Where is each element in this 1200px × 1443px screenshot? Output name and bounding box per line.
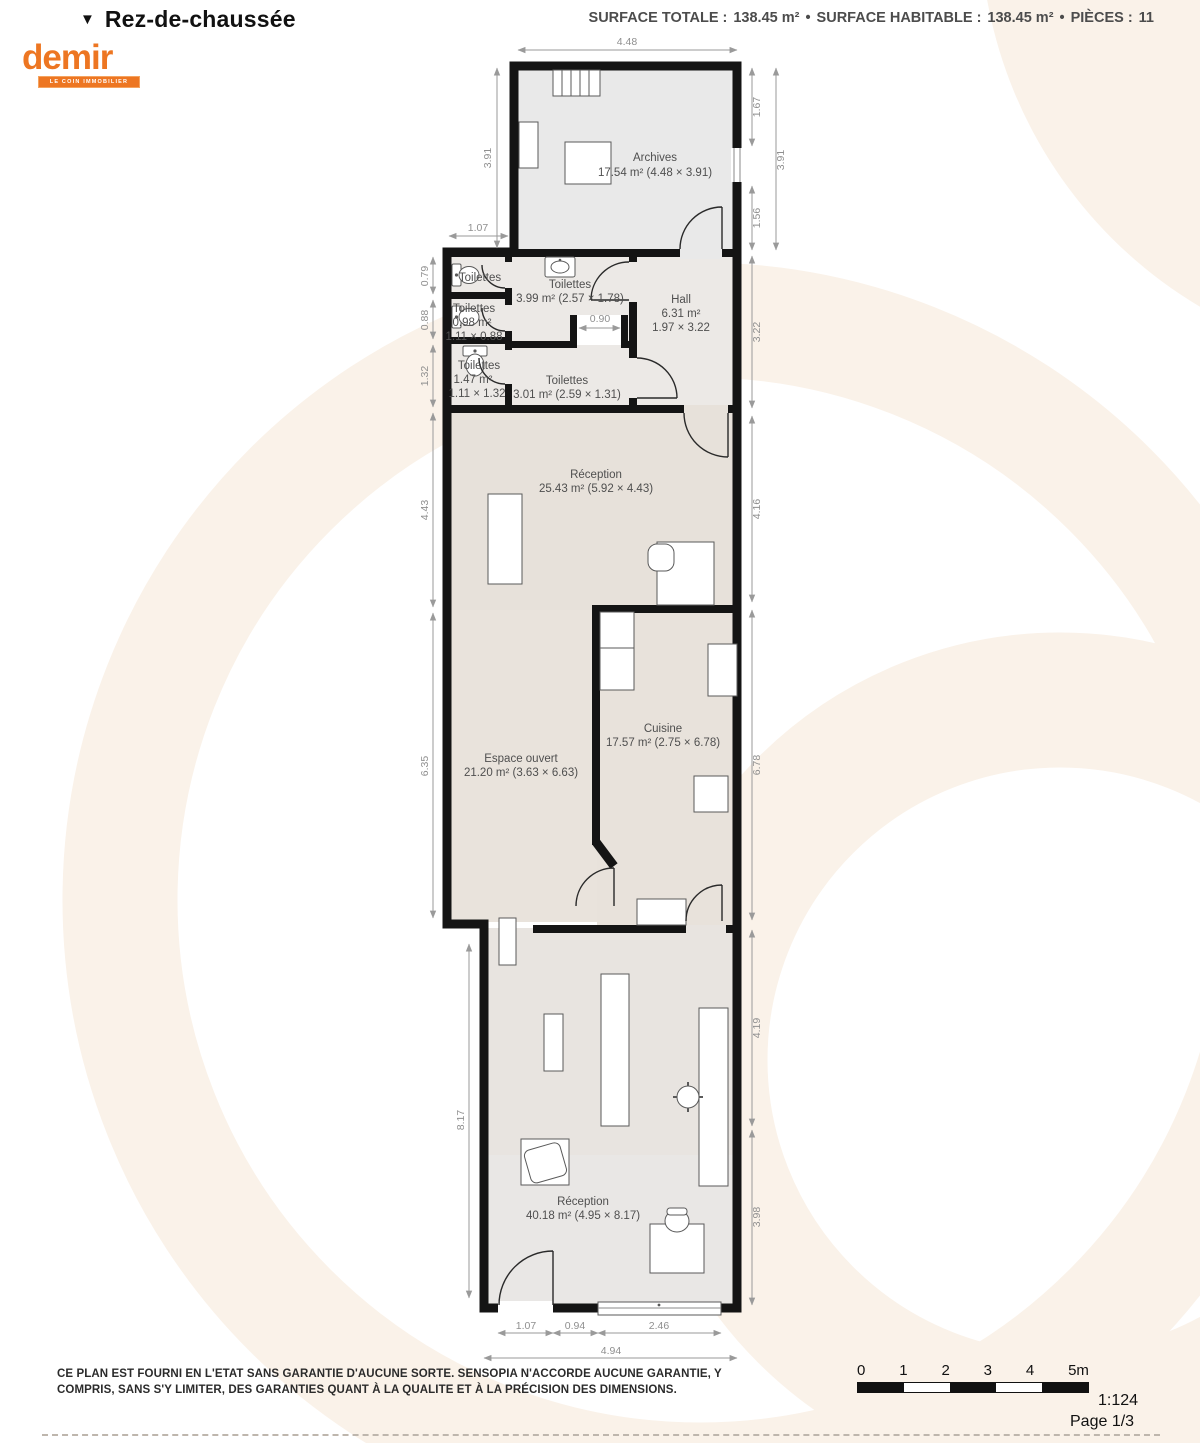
dim-label: 3.22: [751, 322, 763, 343]
stairs-icon: [553, 70, 600, 96]
floor-plan-canvas: 4.48 1.07 3.91 0.79 0.88 1.32 4.43 6.35 …: [0, 0, 1200, 1443]
room-label-hall: Hall: [671, 294, 691, 306]
demir-logo: demir LE COIN IMMOBILIER: [22, 40, 152, 88]
svg-text:40.18 m² (4.95 × 8.17): 40.18 m² (4.95 × 8.17): [526, 1210, 640, 1222]
surface-totale-value: 138.45 m²: [733, 10, 799, 26]
reception1-counter: [488, 494, 522, 584]
page-number: Page 1/3: [1070, 1413, 1134, 1431]
surface-stats: SURFACE TOTALE : 138.45 m² • SURFACE HAB…: [589, 10, 1154, 26]
archives-floor: [510, 64, 740, 254]
svg-text:3.01 m² (2.59 × 1.31): 3.01 m² (2.59 × 1.31): [513, 389, 621, 401]
disclaimer-text: CE PLAN EST FOURNI EN L'ETAT SANS GARANT…: [57, 1366, 752, 1399]
dim-label: 0.88: [419, 310, 431, 331]
reception2-counter: [699, 1008, 728, 1186]
archives-cabinet: [519, 122, 538, 168]
dim-label: 4.43: [419, 500, 431, 521]
svg-text:21.20 m² (3.63 × 6.63): 21.20 m² (3.63 × 6.63): [464, 767, 578, 779]
room-label-reception-2: Réception: [557, 1196, 609, 1208]
brand-wordmark: demir: [22, 40, 152, 75]
desk-chair: [665, 1208, 689, 1232]
svg-text:6.31 m²: 6.31 m²: [662, 308, 701, 320]
room-label-archives: Archives: [633, 152, 677, 164]
dim-label: 1.07: [516, 1320, 537, 1332]
scale-tick-labels: 0 1 2 3 4 5m: [857, 1362, 1089, 1379]
room-label-espace-ouvert: Espace ouvert: [484, 753, 558, 765]
room-label-toilettes-3: Toilettes: [458, 360, 500, 372]
dim-label: 1.67: [751, 97, 763, 118]
surface-habitable-value: 138.45 m²: [987, 10, 1053, 26]
window-archives-right: [731, 148, 743, 182]
sink-icon: [545, 257, 575, 277]
svg-text:25.43 m² (5.92 × 4.43): 25.43 m² (5.92 × 4.43): [539, 483, 653, 495]
scale-tick: 5m: [1068, 1362, 1089, 1379]
scale-tick: 0: [857, 1362, 865, 1379]
dim-label: 3.91: [775, 150, 787, 171]
dim-label: 0.94: [565, 1320, 586, 1332]
room-label-toilettes-2: Toilettes: [453, 303, 495, 315]
scale-ratio: 1:124: [1098, 1392, 1138, 1410]
svg-text:3.99 m² (2.57 × 1.78): 3.99 m² (2.57 × 1.78): [516, 293, 624, 305]
surface-habitable-label: SURFACE HABITABLE :: [817, 10, 982, 26]
brand-tagline-banner: LE COIN IMMOBILIER: [38, 76, 140, 88]
dim-label: 6.78: [751, 755, 763, 776]
dim-label: 8.17: [455, 1110, 467, 1131]
svg-text:17.57 m² (2.75 × 6.78): 17.57 m² (2.75 × 6.78): [606, 737, 720, 749]
dim-label: 1.56: [751, 208, 763, 229]
dim-label: 4.94: [601, 1345, 622, 1357]
reception1-chair: [648, 544, 674, 571]
dim-label: 0.79: [419, 266, 431, 287]
dim-label: 0.90: [590, 313, 611, 325]
espace-cabinet: [499, 918, 516, 965]
svg-text:1.11 × 1.32: 1.11 × 1.32: [448, 388, 505, 400]
pieces-label: PIÈCES :: [1071, 10, 1133, 26]
separator: •: [1060, 10, 1065, 26]
dim-label: 1.07: [468, 222, 489, 234]
triangle-down-icon: ▼: [80, 11, 95, 28]
brand-tagline: LE COIN IMMOBILIER: [50, 79, 128, 85]
dim-label: 3.91: [482, 148, 494, 169]
svg-text:17.54 m² (4.48 × 3.91): 17.54 m² (4.48 × 3.91): [598, 167, 712, 179]
svg-text:1.47 m²: 1.47 m²: [454, 374, 493, 386]
scale-tick: 2: [941, 1362, 949, 1379]
room-label-toilettes-301: Toilettes: [546, 375, 588, 387]
armchair: [521, 1139, 569, 1185]
reception2-cabinet: [544, 1014, 563, 1071]
reception2-shelf: [601, 974, 629, 1126]
dim-label: 4.19: [751, 1018, 763, 1039]
svg-text:1.11 × 0.88: 1.11 × 0.88: [445, 331, 502, 343]
room-label-cuisine: Cuisine: [644, 723, 682, 735]
scale-tick: 3: [984, 1362, 992, 1379]
dim-label: 4.16: [751, 499, 763, 520]
dim-label: 3.98: [751, 1207, 763, 1228]
svg-text:1.97 × 3.22: 1.97 × 3.22: [652, 322, 710, 334]
dim-label: 2.46: [649, 1320, 670, 1332]
dim-label: 1.32: [419, 366, 431, 387]
dim-label: 6.35: [419, 756, 431, 777]
floor-header: ▼ Rez-de-chaussée: [80, 6, 296, 33]
scale-tick: 1: [899, 1362, 907, 1379]
espace-ouvert-floor: [445, 610, 597, 922]
scale-strip: [857, 1382, 1089, 1393]
cut-line: [42, 1434, 1160, 1436]
pieces-value: 11: [1139, 10, 1154, 26]
scale-bar: 0 1 2 3 4 5m: [857, 1362, 1089, 1393]
page-title: Rez-de-chaussée: [105, 6, 296, 33]
scale-tick: 4: [1026, 1362, 1034, 1379]
svg-text:0.98 m²: 0.98 m²: [453, 317, 492, 329]
surface-totale-label: SURFACE TOTALE :: [589, 10, 728, 26]
separator: •: [805, 10, 810, 26]
room-label-toilettes-main: Toilettes: [549, 279, 591, 291]
room-label-reception-1: Réception: [570, 469, 622, 481]
window-bottom: [598, 1302, 721, 1315]
room-label-toilettes-1: Toilettes: [459, 272, 501, 284]
dim-label: 4.48: [617, 36, 638, 48]
